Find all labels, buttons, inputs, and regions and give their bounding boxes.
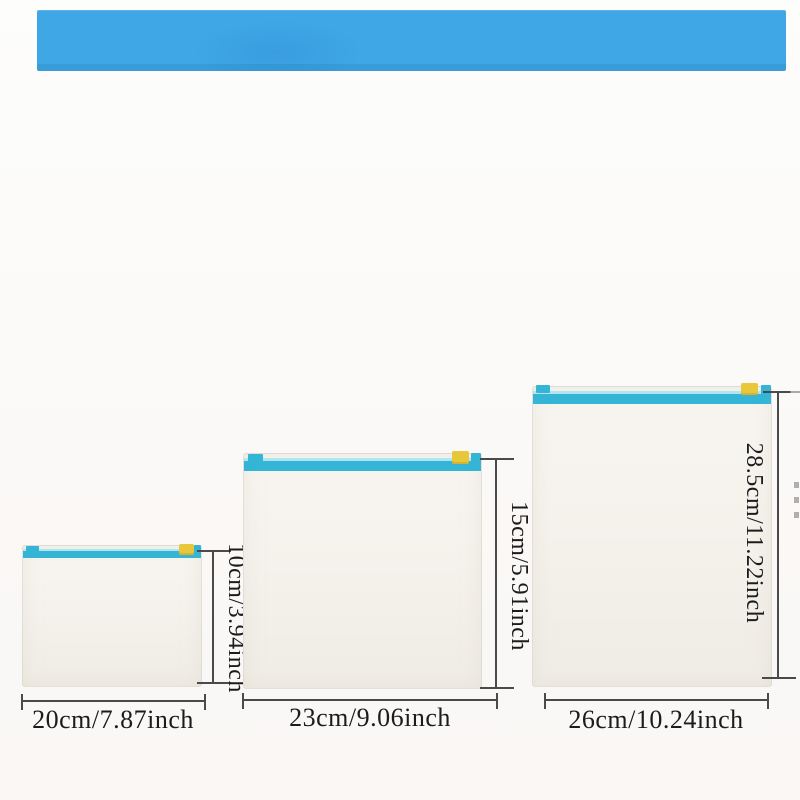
zipper-slider-icon — [741, 383, 758, 395]
zipper-tab-left — [248, 454, 263, 462]
zipper-slider-icon — [452, 451, 469, 464]
bag-medium — [243, 453, 482, 689]
zipper-tab-left — [26, 546, 39, 553]
width-measure-line-large — [545, 699, 768, 701]
width-measure-line-medium — [243, 699, 497, 701]
height-measure-line-large — [777, 392, 779, 678]
zipper-strip — [533, 391, 771, 404]
header-banner — [37, 10, 786, 71]
bag-large — [532, 386, 772, 687]
height-measure-line-medium — [495, 459, 497, 688]
width-label-medium: 23cm/9.06inch — [289, 705, 451, 731]
zipper-tab-left — [536, 385, 550, 393]
product-size-diagram: 20cm/7.87inch 10cm/3.94inch 23cm/9.06inc… — [0, 0, 800, 800]
zipper-slider-icon — [179, 544, 194, 555]
zipper-strip — [23, 549, 201, 558]
height-measure-line-small — [212, 551, 214, 683]
width-measure-line-small — [22, 700, 205, 702]
clipped-text-fragment — [794, 482, 799, 518]
zipper-strip — [244, 458, 481, 471]
bag-small — [22, 545, 202, 687]
height-label-large: 28.5cm/11.22inch — [742, 443, 766, 623]
width-label-large: 26cm/10.24inch — [568, 707, 743, 733]
height-label-medium: 15cm/5.91inch — [507, 501, 531, 651]
width-label-small: 20cm/7.87inch — [32, 707, 194, 733]
